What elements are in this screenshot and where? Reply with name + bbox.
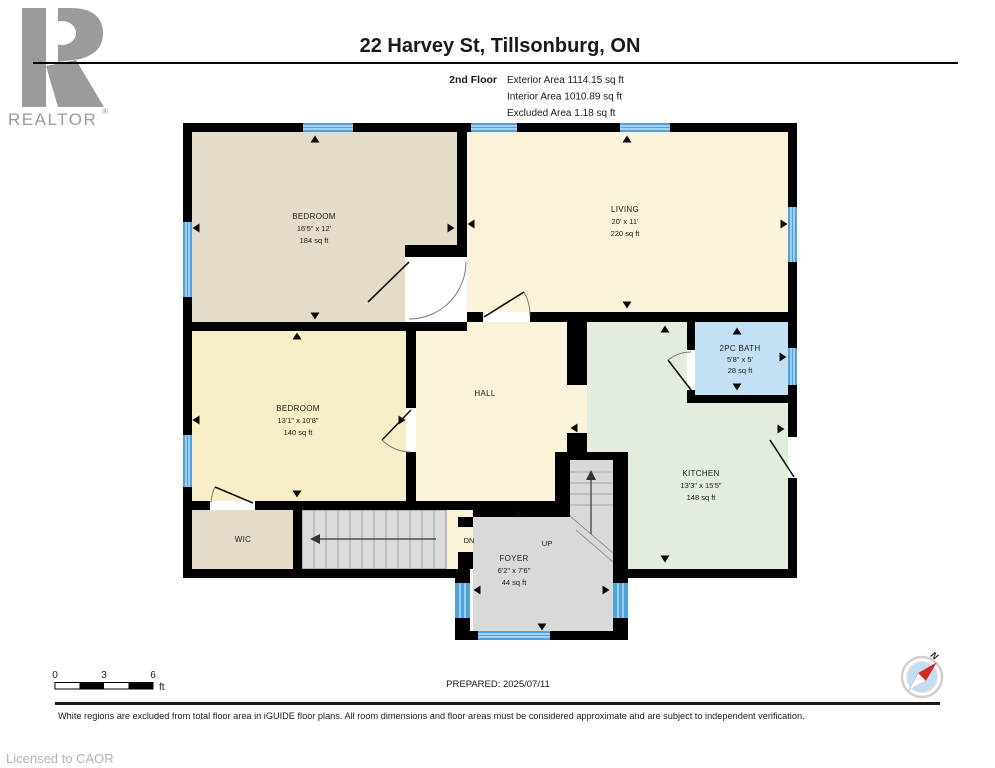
wall-foyer-top <box>473 505 555 517</box>
wall-bath-left-upper <box>687 312 695 350</box>
wall-bed2-right-lower <box>406 452 416 501</box>
bath-area: 28 sq ft <box>728 366 754 375</box>
hall-name: HALL <box>474 389 495 398</box>
realtor-wordmark: REALTOR <box>8 110 97 129</box>
wall-hall-stairs <box>555 460 570 517</box>
stairs-up-label: UP <box>542 539 552 548</box>
prepared-date: PREPARED: 2025/07/11 <box>446 679 550 690</box>
window-bedroom1-top <box>303 123 353 132</box>
bedroom1-name: BEDROOM <box>292 212 335 221</box>
wall-hall-kitchen-upper <box>567 312 587 385</box>
wall-wic-top-1 <box>183 501 210 510</box>
window-foyer-right <box>613 583 628 618</box>
window-bedroom2-left <box>183 435 192 487</box>
wall-exterior-right-upper <box>788 123 797 437</box>
bedroom1-dims: 16'5" x 12' <box>297 224 332 233</box>
stairs-down <box>302 510 446 569</box>
bath-dims: 5'8" x 5' <box>727 355 754 364</box>
room-fills <box>192 132 788 631</box>
realtor-logo: REALTOR ® <box>8 8 108 129</box>
wall-exterior-bottom-left <box>183 569 458 578</box>
foyer-area: 44 sq ft <box>502 578 528 587</box>
wall-exterior-bottom-right <box>628 569 797 578</box>
kitchen-area: 148 sq ft <box>687 493 717 502</box>
scale-bar-segment <box>129 683 154 690</box>
scale-bar: 0 3 6 ft <box>52 670 165 693</box>
bath-name: 2PC BATH <box>720 344 761 353</box>
realtor-logo-r-counter <box>48 21 76 45</box>
window-living-top-1 <box>471 123 517 132</box>
scale-bar-segment <box>80 683 105 690</box>
living-name: LIVING <box>611 205 639 214</box>
kitchen-name: KITCHEN <box>682 469 719 478</box>
floor-plan-canvas: REALTOR ® 22 Harvey St, Tillsonburg, ON … <box>0 0 995 768</box>
wall-exterior-right-lower <box>788 478 797 578</box>
footer-divider <box>55 702 940 705</box>
wall-bath-bottom <box>687 395 797 403</box>
wall-stairs-up-right <box>613 452 628 569</box>
foyer-name: FOYER <box>499 554 528 563</box>
bedroom2-dims: 13'1" x 10'8" <box>277 416 318 425</box>
floor-plan-page: REALTOR ® 22 Harvey St, Tillsonburg, ON … <box>0 0 995 768</box>
bedroom2-name: BEDROOM <box>276 404 319 413</box>
living-dims: 20' x 11' <box>612 217 639 226</box>
wall-wic-top-2 <box>255 501 406 510</box>
wall-bed2-right-upper <box>406 331 416 408</box>
wall-living-bottom-1 <box>467 312 483 322</box>
bedroom1-area: 184 sq ft <box>300 236 330 245</box>
window-foyer-left <box>455 583 470 618</box>
interior-area-stat: Interior Area 1010.89 sq ft <box>507 92 622 103</box>
disclaimer-text: White regions are excluded from total fl… <box>58 711 805 721</box>
licensed-text: Licensed to CAOR <box>6 751 114 766</box>
footer: White regions are excluded from total fl… <box>6 702 940 766</box>
foyer-dims: 6'2" x 7'6" <box>498 566 531 575</box>
window-living-right <box>788 207 797 262</box>
wall-bed1-bottom <box>183 322 405 331</box>
exterior-area-stat: Exterior Area 1114.15 sq ft <box>507 75 624 86</box>
compass-icon: N <box>902 650 942 697</box>
wall-landing-stub-upper <box>458 517 473 527</box>
realtor-logo-r-leg <box>46 60 104 107</box>
wall-bed1-bottom-2 <box>405 322 467 331</box>
stairs-down-label: DN <box>464 536 475 545</box>
window-foyer-bottom <box>478 631 550 640</box>
realtor-logo-r-stem <box>22 8 46 107</box>
window-bath-right <box>788 348 797 385</box>
header-divider <box>33 62 958 64</box>
wall-wic-right <box>293 501 302 569</box>
registered-mark: ® <box>102 107 108 116</box>
scale-tick-3: 3 <box>101 670 107 681</box>
wic-name: WIC <box>235 535 251 544</box>
excluded-area-stat: Excluded Area 1.18 sq ft <box>507 108 616 119</box>
page-title: 22 Harvey St, Tillsonburg, ON <box>360 35 641 57</box>
scale-unit: ft <box>159 682 165 693</box>
living-area: 220 sq ft <box>611 229 641 238</box>
wall-bed1-living <box>457 132 467 245</box>
floor-label: 2nd Floor <box>449 74 497 86</box>
window-bedroom1-left <box>183 222 192 297</box>
scale-tick-6: 6 <box>150 670 156 681</box>
bedroom2-area: 140 sq ft <box>284 428 314 437</box>
header: 22 Harvey St, Tillsonburg, ON 2nd Floor … <box>33 35 958 119</box>
kitchen-dims: 13'3" x 15'5" <box>680 481 721 490</box>
scale-tick-0: 0 <box>52 670 58 681</box>
wall-landing-stub-lower <box>458 552 473 569</box>
window-living-top-2 <box>620 123 670 132</box>
wall-bed1-door-stub <box>405 245 467 257</box>
